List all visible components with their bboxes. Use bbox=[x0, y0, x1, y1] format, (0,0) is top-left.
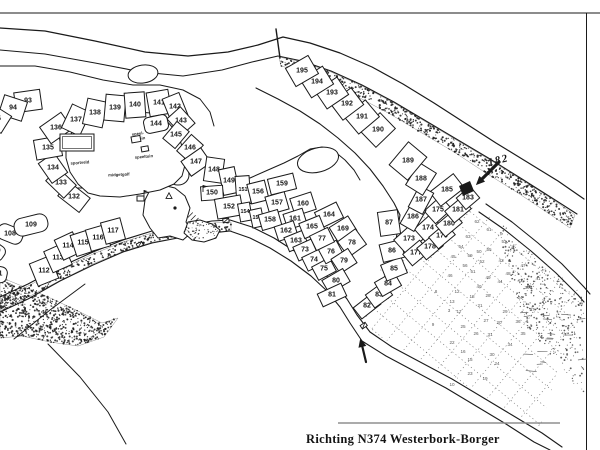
stipple-dot bbox=[542, 313, 544, 315]
grid-parcel-number: 16 bbox=[460, 349, 466, 354]
stipple-dot bbox=[56, 300, 58, 302]
stipple-dot bbox=[553, 200, 555, 202]
stipple-dot bbox=[528, 195, 529, 196]
stipple-dot bbox=[563, 207, 564, 208]
stipple-dot bbox=[92, 338, 93, 339]
stipple-dot bbox=[211, 226, 212, 227]
stipple-dot bbox=[502, 230, 504, 232]
stipple-dot bbox=[439, 131, 440, 132]
stipple-dot bbox=[572, 344, 574, 346]
stipple-dot bbox=[527, 284, 529, 286]
stipple-dot bbox=[187, 230, 188, 231]
stipple-dot bbox=[574, 348, 575, 349]
stipple-dot bbox=[34, 298, 36, 300]
stipple-dot bbox=[28, 334, 29, 335]
parcel-number: 164 bbox=[323, 212, 335, 219]
parcel-number: 137 bbox=[70, 117, 82, 124]
stipple-dot bbox=[52, 299, 54, 301]
stipple-dot bbox=[464, 153, 466, 155]
stipple-dot bbox=[41, 326, 43, 328]
stipple-dot bbox=[213, 233, 214, 234]
stipple-dot bbox=[549, 211, 550, 212]
stipple-dot bbox=[11, 303, 13, 305]
stipple-dot bbox=[528, 253, 529, 254]
parcel-number: 195 bbox=[296, 68, 308, 75]
stipple-dot bbox=[580, 297, 582, 299]
stipple-dot bbox=[508, 186, 509, 187]
stipple-dot bbox=[12, 287, 14, 289]
stipple-dot bbox=[5, 315, 7, 317]
stipple-dot bbox=[451, 149, 452, 150]
stipple-dot bbox=[9, 299, 11, 301]
stipple-dot bbox=[579, 302, 581, 304]
stipple-dot bbox=[560, 311, 561, 312]
parcel-number: 84 bbox=[384, 281, 392, 288]
stipple-dot bbox=[62, 342, 64, 344]
stipple-dot bbox=[70, 315, 72, 317]
stipple-dot bbox=[553, 291, 554, 292]
stipple-dot bbox=[544, 343, 545, 344]
stipple-dot bbox=[208, 240, 209, 241]
parcel-number: 79 bbox=[340, 258, 348, 265]
stipple-dot bbox=[523, 305, 524, 306]
stipple-dot bbox=[197, 223, 199, 225]
grid-parcel-number: 62 bbox=[474, 219, 480, 224]
stipple-dot bbox=[407, 118, 408, 119]
stipple-dot bbox=[98, 331, 100, 333]
stipple-dot bbox=[541, 333, 542, 334]
stipple-dot bbox=[199, 237, 200, 238]
stipple-dot bbox=[542, 266, 544, 268]
stipple-dot bbox=[531, 254, 532, 255]
scanned-map-page: 6263615354555045594252564751484649444340… bbox=[0, 0, 600, 450]
stipple-dot bbox=[540, 288, 542, 290]
stipple-dot bbox=[43, 313, 44, 314]
stipple-dot bbox=[30, 304, 32, 306]
parcel-number: 150 bbox=[206, 190, 218, 197]
stipple-dot bbox=[534, 190, 536, 192]
stipple-dot bbox=[566, 222, 567, 223]
parcel-number: 144 bbox=[150, 121, 162, 128]
stipple-dot bbox=[571, 220, 573, 222]
parcel-boundary bbox=[0, 239, 8, 264]
stipple-dot bbox=[573, 375, 574, 376]
stipple-dot bbox=[460, 148, 462, 150]
stipple-dot bbox=[196, 229, 197, 230]
stipple-dot bbox=[527, 321, 529, 323]
stipple-dot bbox=[395, 106, 396, 107]
stipple-dot bbox=[87, 324, 88, 325]
stipple-dot bbox=[58, 328, 60, 330]
stipple-dot bbox=[362, 89, 363, 90]
stipple-dot bbox=[459, 146, 460, 147]
grid-parcel-number: 29 bbox=[502, 309, 508, 314]
stipple-dot bbox=[98, 338, 99, 339]
stipple-dot bbox=[61, 307, 62, 308]
stipple-dot bbox=[573, 315, 575, 317]
stipple-dot bbox=[536, 329, 537, 330]
stipple-dot bbox=[19, 329, 20, 330]
parcel-number: 145 bbox=[170, 132, 182, 139]
stipple-dot bbox=[47, 298, 49, 300]
stipple-dot bbox=[41, 287, 43, 289]
stipple-dot bbox=[554, 349, 555, 350]
stipple-dot bbox=[74, 310, 76, 312]
stipple-dot bbox=[542, 203, 544, 205]
stipple-dot bbox=[558, 276, 559, 277]
stipple-dot bbox=[581, 389, 582, 390]
stipple-dot bbox=[420, 122, 421, 123]
stipple-dot bbox=[384, 102, 386, 104]
stipple-dot bbox=[62, 326, 64, 328]
stipple-dot bbox=[386, 107, 387, 108]
grid-parcel-number: 51 bbox=[470, 269, 476, 274]
stipple-dot bbox=[58, 309, 59, 310]
stipple-dot bbox=[208, 231, 210, 233]
parcel-number: 108 bbox=[4, 231, 16, 238]
stipple-dot bbox=[372, 92, 374, 94]
stipple-dot bbox=[544, 209, 546, 211]
grid-parcel-number: 54 bbox=[458, 244, 464, 249]
stipple-dot bbox=[527, 192, 528, 193]
stipple-dot bbox=[4, 305, 5, 306]
stipple-dot bbox=[72, 316, 74, 318]
stipple-dot bbox=[469, 154, 471, 156]
stipple-dot bbox=[399, 115, 401, 117]
grid-parcel-number: 48 bbox=[505, 271, 511, 276]
stipple-dot bbox=[583, 313, 584, 314]
stipple-dot bbox=[44, 330, 45, 331]
grid-parcel-number: 25 bbox=[460, 324, 466, 329]
stipple-dot bbox=[199, 226, 200, 227]
parcel-number: 139 bbox=[109, 105, 121, 112]
stipple-dot bbox=[197, 225, 198, 226]
stipple-dot bbox=[39, 300, 41, 302]
stipple-dot bbox=[2, 317, 4, 319]
parcel-110: 110 bbox=[0, 239, 8, 264]
stipple-dot bbox=[398, 117, 400, 119]
stipple-dot bbox=[21, 335, 22, 336]
stipple-dot bbox=[61, 335, 63, 337]
stipple-dot bbox=[26, 314, 27, 315]
grid-parcel-number: 56 bbox=[462, 263, 468, 268]
stipple-dot bbox=[91, 336, 92, 337]
stipple-dot bbox=[33, 321, 34, 322]
parcel-number: 189 bbox=[402, 158, 414, 165]
stipple-dot bbox=[567, 355, 568, 356]
stipple-dot bbox=[545, 301, 546, 302]
stipple-dot bbox=[541, 277, 543, 279]
stipple-dot bbox=[87, 262, 89, 264]
stipple-dot bbox=[573, 298, 575, 300]
stipple-dot bbox=[36, 324, 38, 326]
stipple-dot bbox=[92, 330, 94, 332]
stipple-dot bbox=[150, 236, 152, 238]
stipple-dot bbox=[207, 229, 208, 230]
grass-streak bbox=[526, 371, 537, 372]
stipple-dot bbox=[555, 352, 556, 353]
stipple-dot bbox=[130, 242, 132, 244]
stipple-dot bbox=[228, 228, 230, 230]
stipple-dot bbox=[62, 308, 64, 310]
stipple-dot bbox=[514, 183, 516, 185]
stipple-dot bbox=[84, 340, 86, 342]
stipple-dot bbox=[507, 250, 509, 252]
parcel-number: 193 bbox=[326, 90, 338, 97]
stipple-dot bbox=[74, 336, 76, 338]
stipple-dot bbox=[528, 275, 530, 277]
stipple-dot bbox=[526, 313, 527, 314]
stipple-dot bbox=[440, 138, 442, 140]
stipple-dot bbox=[69, 271, 71, 273]
stipple-dot bbox=[21, 309, 23, 311]
stipple-dot bbox=[87, 336, 88, 337]
stipple-dot bbox=[358, 85, 359, 86]
stipple-dot bbox=[406, 116, 408, 118]
stipple-dot bbox=[528, 262, 529, 263]
stipple-dot bbox=[25, 290, 26, 291]
tennis-court-icon bbox=[60, 134, 94, 151]
stipple-dot bbox=[542, 301, 544, 303]
stipple-dot bbox=[543, 300, 544, 301]
stipple-dot bbox=[512, 265, 514, 267]
stipple-dot bbox=[22, 304, 24, 306]
stipple-dot bbox=[192, 223, 193, 224]
stipple-dot bbox=[551, 349, 552, 350]
stipple-dot bbox=[364, 88, 366, 90]
parcel-number: 147 bbox=[190, 159, 202, 166]
stipple-dot bbox=[451, 138, 452, 139]
stipple-dot bbox=[24, 304, 25, 305]
stipple-dot bbox=[100, 325, 101, 326]
stipple-dot bbox=[67, 272, 68, 273]
grid-parcel-number: 9 bbox=[432, 322, 435, 327]
stipple-dot bbox=[542, 281, 543, 282]
stipple-dot bbox=[518, 273, 520, 275]
stipple-dot bbox=[580, 317, 582, 319]
stipple-dot bbox=[280, 60, 281, 61]
stipple-dot bbox=[559, 345, 560, 346]
stipple-dot bbox=[546, 287, 548, 289]
stipple-dot bbox=[82, 314, 83, 315]
stipple-dot bbox=[531, 288, 533, 290]
stipple-dot bbox=[45, 304, 46, 305]
grid-dotted-line bbox=[104, 239, 597, 450]
stipple-dot bbox=[583, 369, 584, 370]
stipple-dot bbox=[4, 290, 5, 291]
stipple-dot bbox=[540, 283, 541, 284]
grid-dotted-line bbox=[115, 226, 600, 450]
stipple-dot bbox=[547, 274, 549, 276]
stipple-dot bbox=[567, 345, 568, 346]
stipple-dot bbox=[48, 283, 50, 285]
parcel-number: 165 bbox=[306, 224, 318, 231]
stipple-dot bbox=[215, 224, 217, 226]
stipple-dot bbox=[517, 267, 519, 269]
stipple-dot bbox=[214, 235, 215, 236]
stipple-dot bbox=[577, 383, 578, 384]
stipple-dot bbox=[381, 109, 382, 110]
stipple-dot bbox=[25, 316, 26, 317]
stipple-dot bbox=[477, 155, 479, 157]
stipple-dot bbox=[413, 119, 414, 120]
gate-icon bbox=[223, 218, 229, 223]
parcel-number: 114 bbox=[62, 243, 73, 250]
stipple-dot bbox=[582, 367, 583, 368]
stipple-dot bbox=[87, 327, 88, 328]
stipple-dot bbox=[524, 314, 525, 315]
grid-parcel-number: 27 bbox=[483, 318, 489, 323]
stipple-dot bbox=[65, 275, 66, 276]
stipple-dot bbox=[53, 314, 55, 316]
stipple-dot bbox=[527, 185, 529, 187]
stipple-dot bbox=[525, 295, 526, 296]
stipple-dot bbox=[119, 243, 121, 245]
stipple-dot bbox=[108, 250, 109, 251]
stipple-dot bbox=[536, 324, 538, 326]
stipple-dot bbox=[521, 194, 522, 195]
parcel-number: 73 bbox=[301, 247, 309, 254]
stipple-dot bbox=[7, 298, 9, 300]
stipple-dot bbox=[74, 315, 76, 317]
stipple-dot bbox=[11, 319, 13, 321]
stipple-dot bbox=[56, 321, 58, 323]
stipple-dot bbox=[135, 238, 136, 239]
stipple-dot bbox=[581, 314, 582, 315]
stipple-dot bbox=[581, 302, 582, 303]
stipple-dot bbox=[522, 297, 523, 298]
parcel-140: 140 bbox=[124, 92, 146, 118]
stipple-dot bbox=[36, 290, 37, 291]
stipple-dot bbox=[225, 228, 226, 229]
stipple-dot bbox=[76, 310, 77, 311]
stipple-dot bbox=[567, 332, 569, 334]
stipple-dot bbox=[539, 197, 540, 198]
stipple-dot bbox=[94, 261, 96, 263]
stipple-dot bbox=[21, 330, 23, 332]
stipple-dot bbox=[513, 248, 515, 250]
stipple-dot bbox=[539, 302, 541, 304]
stipple-dot bbox=[43, 324, 44, 325]
stipple-dot bbox=[103, 330, 105, 332]
stipple-dot bbox=[553, 351, 554, 352]
stipple-dot bbox=[36, 308, 37, 309]
stipple-dot bbox=[471, 153, 473, 155]
stipple-dot bbox=[1, 321, 3, 323]
stipple-dot bbox=[27, 295, 29, 297]
stipple-dot bbox=[41, 311, 43, 313]
stipple-dot bbox=[32, 327, 34, 329]
stipple-dot bbox=[538, 339, 539, 340]
stipple-dot bbox=[16, 309, 17, 310]
stipple-dot bbox=[472, 160, 474, 162]
stipple-dot bbox=[2, 302, 4, 304]
stipple-dot bbox=[4, 299, 6, 301]
stipple-dot bbox=[18, 327, 19, 328]
stipple-dot bbox=[47, 319, 48, 320]
stipple-dot bbox=[95, 322, 97, 324]
stipple-dot bbox=[555, 210, 556, 211]
stipple-dot bbox=[579, 375, 581, 377]
stipple-dot bbox=[536, 273, 538, 275]
stipple-dot bbox=[508, 246, 509, 247]
stipple-dot bbox=[557, 316, 558, 317]
grid-parcel-number: 35 bbox=[520, 331, 526, 336]
stipple-dot bbox=[527, 307, 528, 308]
stipple-dot bbox=[514, 250, 516, 252]
stipple-dot bbox=[524, 301, 525, 302]
parcel-number: 154 bbox=[241, 209, 250, 215]
stipple-dot bbox=[9, 323, 11, 325]
stipple-dot bbox=[22, 327, 24, 329]
stipple-dot bbox=[542, 305, 543, 306]
stipple-dot bbox=[60, 333, 62, 335]
stipple-dot bbox=[29, 323, 30, 324]
stipple-dot bbox=[149, 234, 151, 236]
stipple-dot bbox=[562, 320, 563, 321]
stipple-dot bbox=[437, 141, 438, 142]
parcel-number: 192 bbox=[341, 101, 353, 108]
stipple-dot bbox=[521, 279, 523, 281]
stipple-dot bbox=[541, 314, 543, 316]
stipple-dot bbox=[479, 155, 480, 156]
stipple-dot bbox=[23, 297, 24, 298]
stipple-dot bbox=[540, 193, 542, 195]
stipple-dot bbox=[91, 330, 92, 331]
stipple-dot bbox=[206, 233, 207, 234]
stipple-dot bbox=[22, 296, 23, 297]
stipple-dot bbox=[567, 220, 569, 222]
stipple-dot bbox=[393, 115, 394, 116]
stipple-dot bbox=[94, 323, 95, 324]
stipple-dot bbox=[502, 233, 503, 234]
stipple-dot bbox=[51, 337, 53, 339]
stipple-dot bbox=[59, 315, 61, 317]
grid-parcel-number: 30 bbox=[489, 352, 495, 357]
stipple-dot bbox=[2, 324, 4, 326]
stipple-dot bbox=[110, 326, 111, 327]
grid-parcel-number: 15 bbox=[467, 357, 473, 362]
stipple-dot bbox=[206, 224, 207, 225]
stipple-dot bbox=[505, 250, 506, 251]
stipple-dot bbox=[553, 317, 554, 318]
stipple-dot bbox=[52, 330, 53, 331]
stipple-dot bbox=[429, 127, 431, 129]
stipple-dot bbox=[413, 121, 415, 123]
stipple-dot bbox=[24, 289, 25, 290]
stipple-dot bbox=[533, 264, 534, 265]
stipple-dot bbox=[42, 301, 43, 302]
stipple-dot bbox=[524, 182, 525, 183]
stipple-dot bbox=[17, 331, 18, 332]
stipple-dot bbox=[437, 129, 439, 131]
stipple-dot bbox=[77, 325, 78, 326]
stipple-dot bbox=[36, 301, 38, 303]
stipple-dot bbox=[417, 122, 419, 124]
stipple-dot bbox=[22, 290, 23, 291]
stipple-dot bbox=[499, 167, 501, 169]
parcel-number: 169 bbox=[337, 226, 349, 233]
stipple-dot bbox=[85, 317, 86, 318]
stipple-dot bbox=[48, 332, 50, 334]
stipple-dot bbox=[73, 323, 75, 325]
stipple-dot bbox=[532, 271, 533, 272]
stipple-dot bbox=[477, 164, 479, 166]
stipple-dot bbox=[341, 80, 343, 82]
stipple-dot bbox=[28, 317, 30, 319]
stipple-dot bbox=[56, 316, 58, 318]
parcel-number: 162 bbox=[280, 228, 292, 235]
